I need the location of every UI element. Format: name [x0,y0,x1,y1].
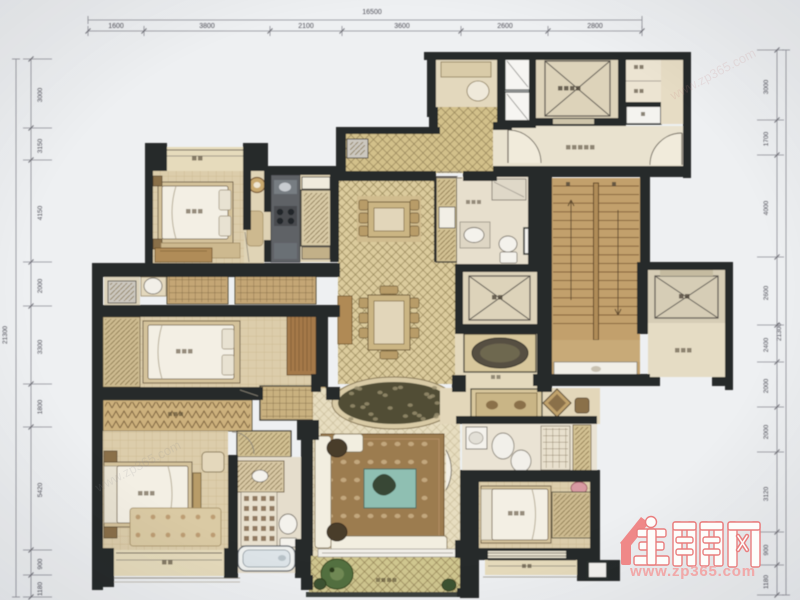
svg-text:www.zp365.com: www.zp365.com [629,563,756,580]
